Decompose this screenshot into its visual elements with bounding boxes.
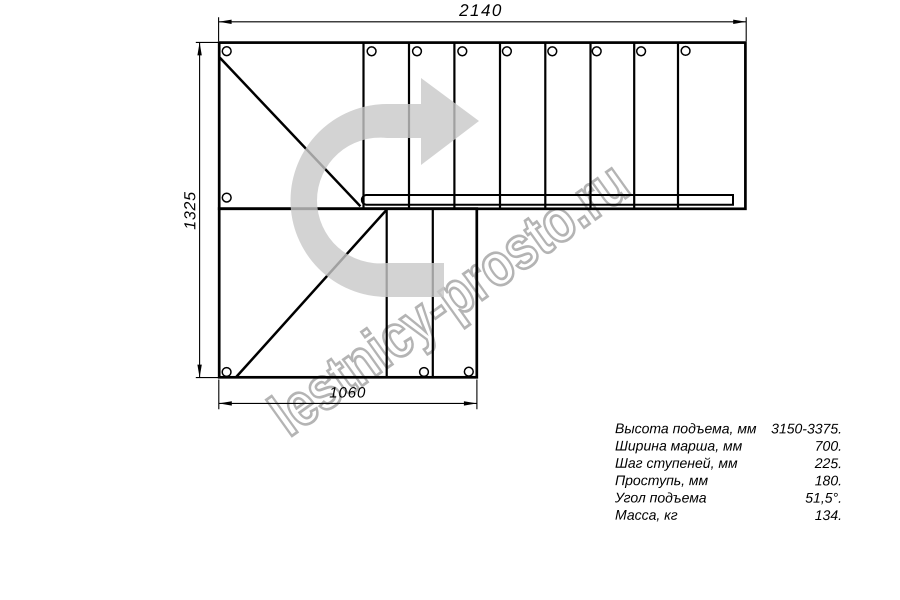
svg-text:134.: 134. <box>815 507 842 523</box>
svg-text:2140: 2140 <box>458 1 503 20</box>
svg-text:Высота подъема, мм: Высота подъема, мм <box>615 420 757 436</box>
svg-text:Шаг ступеней, мм: Шаг ступеней, мм <box>615 455 738 471</box>
svg-text:1060: 1060 <box>329 384 366 401</box>
svg-text:1325: 1325 <box>182 191 199 229</box>
svg-text:Угол подъема: Угол подъема <box>614 489 707 505</box>
svg-text:3150-3375.: 3150-3375. <box>771 420 842 436</box>
svg-text:Проступь, мм: Проступь, мм <box>615 472 709 488</box>
svg-text:51,5°.: 51,5°. <box>805 490 842 506</box>
svg-text:Масса, кг: Масса, кг <box>615 507 678 523</box>
svg-text:Ширина марша, мм: Ширина марша, мм <box>615 437 743 453</box>
svg-text:700.: 700. <box>815 438 842 454</box>
svg-text:180.: 180. <box>815 472 842 488</box>
svg-text:225.: 225. <box>814 455 842 471</box>
